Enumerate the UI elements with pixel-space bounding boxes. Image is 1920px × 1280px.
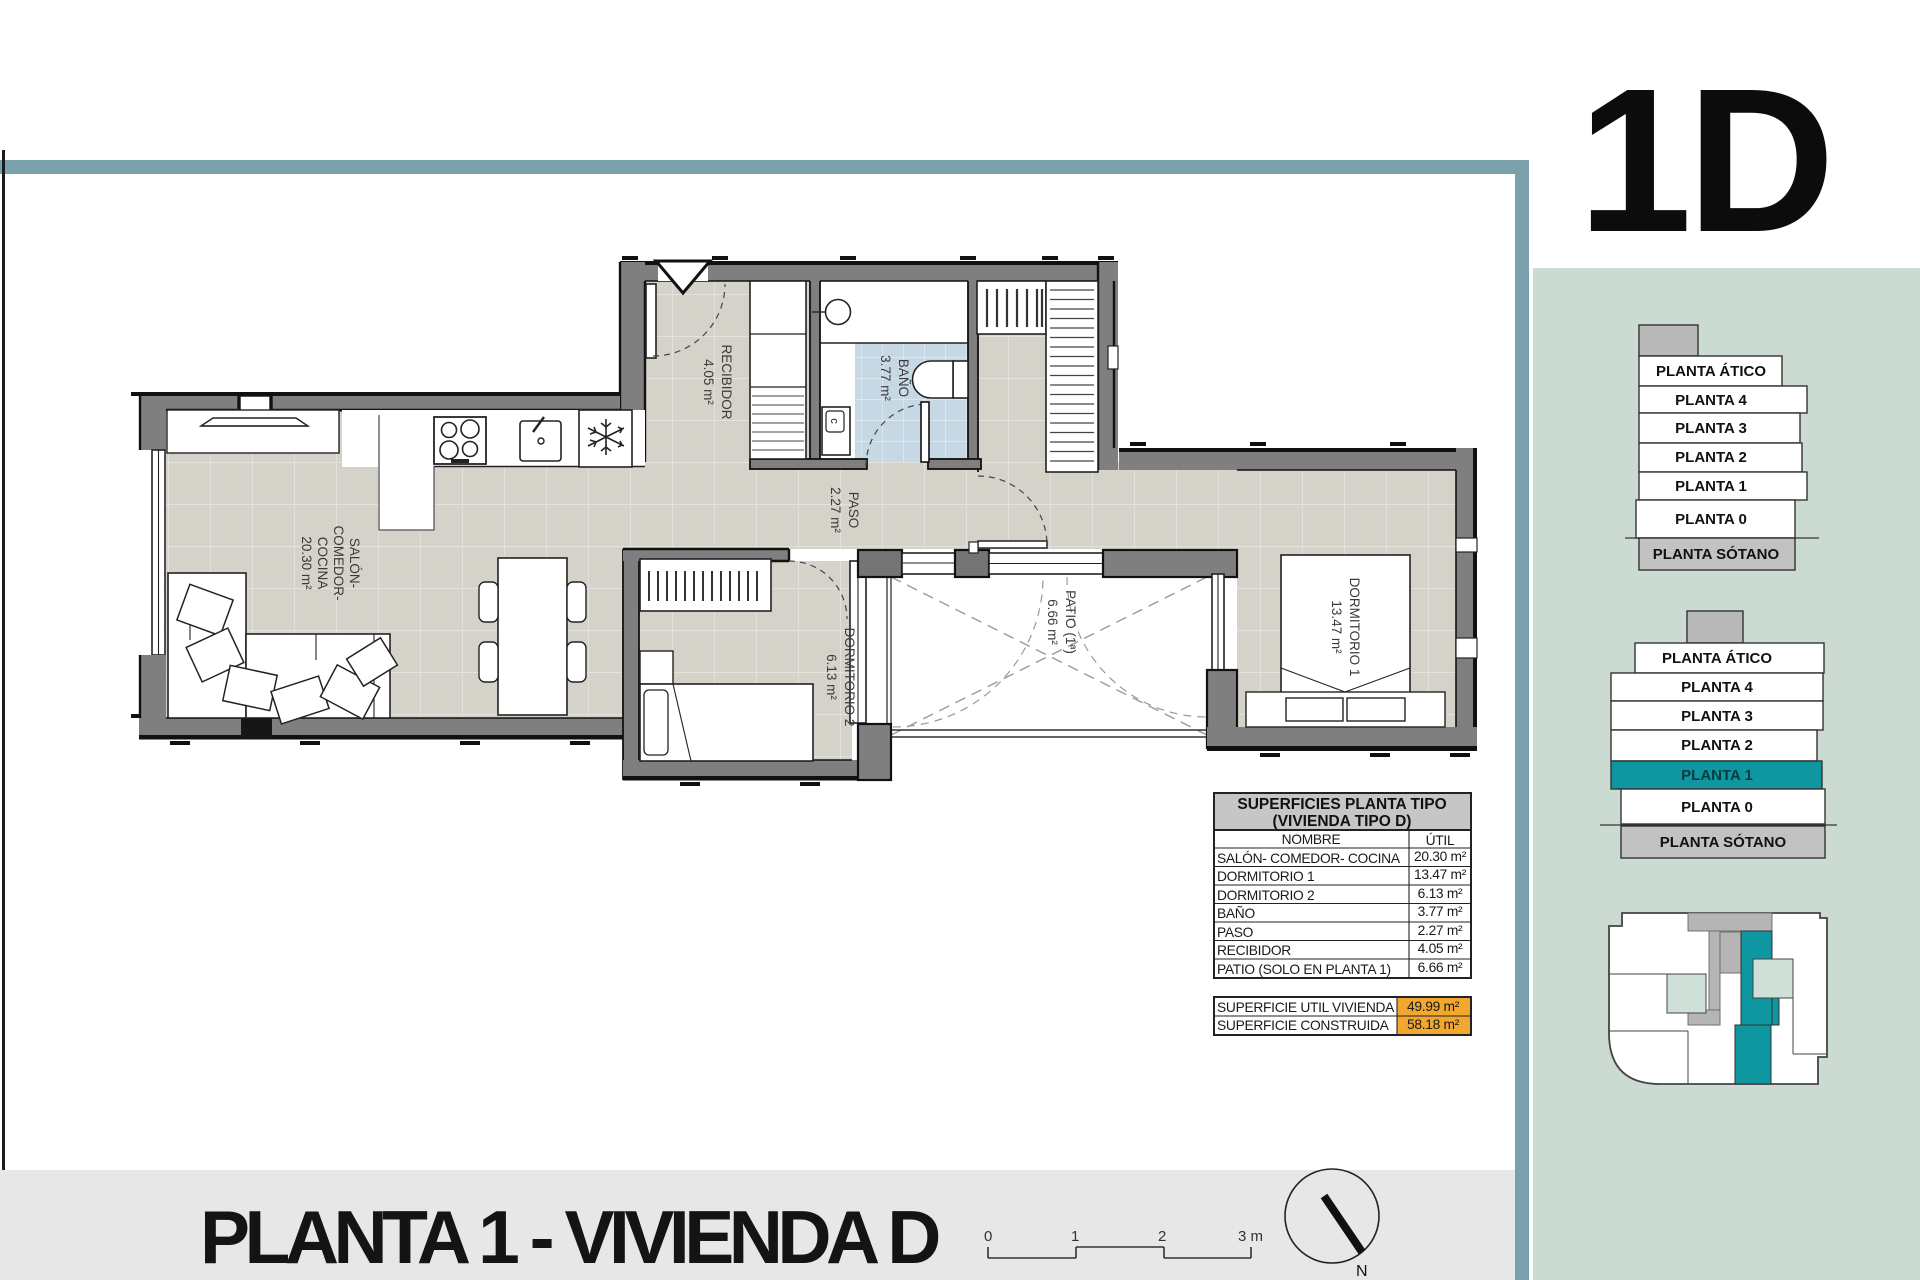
svg-text:DORMITORIO 2: DORMITORIO 2 — [1217, 888, 1314, 903]
svg-text:N: N — [1356, 1263, 1368, 1280]
svg-text:PLANTA 0: PLANTA 0 — [1681, 799, 1753, 816]
svg-text:RECIBIDOR: RECIBIDOR — [1217, 943, 1291, 958]
svg-text:PASO: PASO — [846, 492, 861, 529]
svg-text:2: 2 — [1158, 1228, 1166, 1245]
svg-text:PLANTA 1: PLANTA 1 — [1681, 767, 1753, 784]
svg-text:DORMITORIO 2: DORMITORIO 2 — [842, 628, 857, 727]
svg-text:PASO: PASO — [1217, 925, 1254, 940]
svg-text:PLANTA 2: PLANTA 2 — [1681, 737, 1753, 754]
svg-text:PLANTA ÁTICO: PLANTA ÁTICO — [1656, 363, 1766, 380]
svg-text:0: 0 — [984, 1228, 992, 1245]
svg-text:PATIO (SOLO EN PLANTA 1): PATIO (SOLO EN PLANTA 1) — [1217, 962, 1391, 977]
svg-text:PLANTA 4: PLANTA 4 — [1675, 392, 1747, 409]
svg-text:PLANTA ÁTICO: PLANTA ÁTICO — [1662, 650, 1772, 667]
svg-text:1: 1 — [1071, 1228, 1079, 1245]
svg-text:6.13 m²: 6.13 m² — [1418, 886, 1463, 901]
svg-text:20.30 m²: 20.30 m² — [299, 536, 314, 590]
svg-text:20.30 m²: 20.30 m² — [1414, 849, 1467, 864]
svg-text:SUPERFICIES PLANTA TIPO: SUPERFICIES PLANTA TIPO — [1237, 796, 1446, 813]
svg-text:PLANTA 1: PLANTA 1 — [1675, 478, 1747, 495]
svg-text:3.77 m²: 3.77 m² — [878, 355, 893, 401]
svg-text:NOMBRE: NOMBRE — [1282, 832, 1341, 847]
svg-text:PLANTA SÓTANO: PLANTA SÓTANO — [1660, 833, 1787, 851]
svg-text:PLANTA SÓTANO: PLANTA SÓTANO — [1653, 545, 1780, 563]
svg-text:13.47 m²: 13.47 m² — [1329, 600, 1344, 654]
svg-text:13.47 m²: 13.47 m² — [1414, 867, 1467, 882]
svg-text:PLANTA 3: PLANTA 3 — [1681, 708, 1753, 725]
svg-text:RECIBIDOR: RECIBIDOR — [719, 344, 734, 419]
svg-text:1D: 1D — [1578, 46, 1830, 275]
svg-text:6.13 m²: 6.13 m² — [824, 654, 839, 700]
svg-text:PLANTA 4: PLANTA 4 — [1681, 679, 1753, 696]
svg-text:PLANTA 2: PLANTA 2 — [1675, 449, 1747, 466]
svg-text:PLANTA 0: PLANTA 0 — [1675, 511, 1747, 528]
svg-text:COCINA: COCINA — [315, 537, 330, 590]
svg-text:SUPERFICIE UTIL VIVIENDA: SUPERFICIE UTIL VIVIENDA — [1217, 1000, 1395, 1015]
svg-text:PATIO (1ª): PATIO (1ª) — [1063, 590, 1078, 654]
svg-text:SUPERFICIE CONSTRUIDA: SUPERFICIE CONSTRUIDA — [1217, 1018, 1390, 1033]
svg-text:2.27 m²: 2.27 m² — [828, 487, 843, 533]
svg-text:DORMITORIO 1: DORMITORIO 1 — [1347, 578, 1362, 677]
svg-text:DORMITORIO 1: DORMITORIO 1 — [1217, 869, 1314, 884]
svg-text:SALÓN-: SALÓN- — [347, 538, 362, 588]
svg-text:6.66 m²: 6.66 m² — [1045, 599, 1060, 645]
svg-text:c: c — [828, 418, 840, 424]
svg-text:COMEDOR-: COMEDOR- — [331, 526, 346, 601]
svg-text:58.18 m²: 58.18 m² — [1407, 1017, 1460, 1032]
svg-text:49.99 m²: 49.99 m² — [1407, 999, 1460, 1014]
svg-text:3 m: 3 m — [1238, 1228, 1263, 1245]
svg-text:4.05 m²: 4.05 m² — [701, 359, 716, 405]
svg-text:BAÑO: BAÑO — [1217, 905, 1255, 921]
svg-text:2.27 m²: 2.27 m² — [1418, 923, 1463, 938]
svg-text:(VIVIENDA TIPO D): (VIVIENDA TIPO D) — [1273, 813, 1412, 830]
svg-text:PLANTA 3: PLANTA 3 — [1675, 420, 1747, 437]
svg-text:PLANTA 1 - VIVIENDA D: PLANTA 1 - VIVIENDA D — [200, 1195, 939, 1279]
svg-text:BAÑO: BAÑO — [896, 359, 911, 397]
svg-text:6.66 m²: 6.66 m² — [1418, 960, 1463, 975]
svg-text:4.05 m²: 4.05 m² — [1418, 941, 1463, 956]
svg-text:3.77 m²: 3.77 m² — [1418, 904, 1463, 919]
svg-text:SALÓN- COMEDOR- COCINA: SALÓN- COMEDOR- COCINA — [1217, 850, 1401, 866]
svg-text:ÚTIL: ÚTIL — [1426, 832, 1455, 848]
